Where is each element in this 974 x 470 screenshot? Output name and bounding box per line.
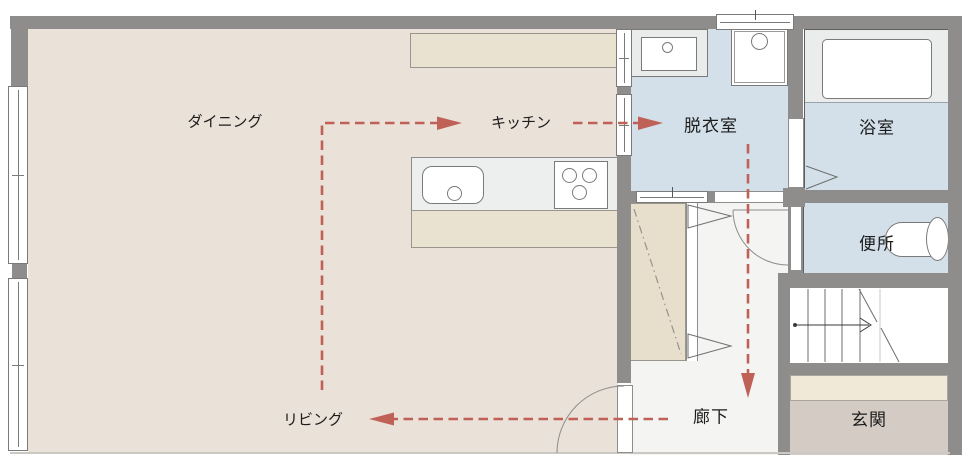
sink-drain-icon [447, 186, 462, 201]
toilet-tank [926, 217, 949, 261]
entrance-label: 玄関 [851, 406, 887, 431]
plan-bottom-edge [10, 452, 950, 454]
hallway-label: 廊下 [693, 403, 729, 428]
floor-plan: ダイニング キッチン 脱衣室 浴室 便所 廊下 玄関 リビング [0, 0, 974, 470]
toilet-door-opening [790, 206, 802, 271]
wall [788, 16, 803, 119]
staircase [790, 288, 948, 363]
stove [554, 161, 608, 209]
room-bathroom [804, 29, 949, 191]
living-label: リビング [283, 409, 343, 430]
washer-lid-icon [751, 33, 768, 50]
faucet-icon [662, 42, 673, 53]
dressing-low-window [636, 191, 708, 203]
wall [778, 288, 790, 455]
kitchen-label: キッチン [491, 112, 551, 133]
window [8, 278, 28, 451]
washbasin [630, 29, 708, 77]
bathtub [822, 39, 932, 99]
dressing-label: 脱衣室 [684, 112, 738, 137]
wall [788, 190, 962, 203]
wall [11, 16, 28, 87]
burner-icon [572, 185, 587, 200]
kitchen-upper-cabinet [410, 33, 617, 68]
living-door-leaf [617, 385, 633, 453]
closet [630, 203, 686, 361]
window [8, 86, 28, 264]
wall [794, 16, 962, 29]
wall [790, 363, 950, 375]
wall-window-mullion [12, 263, 27, 279]
closet-door-track [686, 203, 698, 361]
bathroom-label: 浴室 [859, 114, 895, 139]
burner-icon [562, 168, 577, 183]
bathroom-door-opening [788, 118, 804, 188]
kitchen-pass-window [616, 29, 632, 87]
kitchen-pass-opening [616, 94, 632, 156]
dressing-door-opening [714, 191, 784, 203]
wall [778, 273, 962, 288]
window [716, 14, 794, 30]
washing-machine [731, 28, 788, 86]
wall [617, 155, 631, 383]
entrance-step [790, 375, 948, 401]
toilet-label: 便所 [859, 230, 895, 255]
wall [10, 16, 716, 29]
wall [948, 16, 962, 455]
burner-icon [582, 168, 597, 183]
kitchen-lower-cabinet [411, 210, 618, 248]
dining-label: ダイニング [187, 111, 262, 132]
